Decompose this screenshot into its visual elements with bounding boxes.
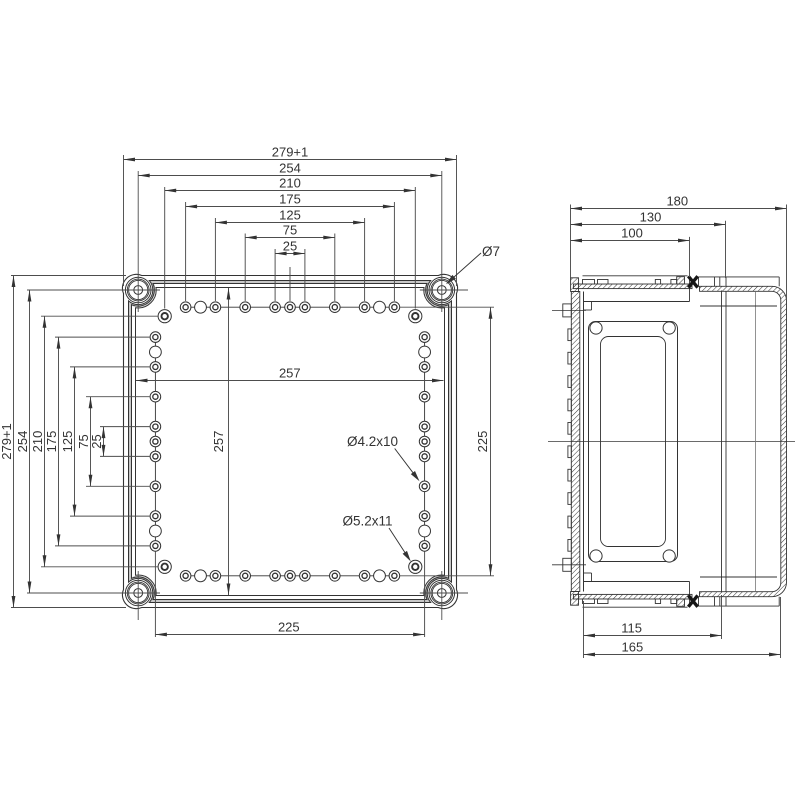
- svg-text:125: 125: [60, 431, 75, 453]
- svg-text:Ø7: Ø7: [482, 244, 500, 259]
- svg-text:254: 254: [279, 161, 301, 176]
- svg-text:100: 100: [621, 226, 643, 241]
- svg-text:25: 25: [89, 434, 104, 448]
- svg-text:279+1: 279+1: [0, 423, 14, 460]
- svg-text:125: 125: [279, 208, 301, 223]
- svg-text:Ø5.2x11: Ø5.2x11: [342, 514, 392, 529]
- svg-text:257: 257: [211, 431, 226, 453]
- svg-text:210: 210: [30, 431, 45, 453]
- svg-text:130: 130: [640, 210, 662, 225]
- svg-text:175: 175: [279, 192, 301, 207]
- svg-text:257: 257: [279, 366, 301, 381]
- svg-text:210: 210: [279, 176, 301, 191]
- svg-text:25: 25: [283, 239, 297, 254]
- svg-text:175: 175: [44, 431, 59, 453]
- svg-text:115: 115: [621, 621, 642, 636]
- svg-text:225: 225: [475, 431, 490, 453]
- svg-text:75: 75: [283, 223, 297, 238]
- svg-text:165: 165: [622, 640, 644, 655]
- svg-text:Ø4.2x10: Ø4.2x10: [347, 434, 398, 449]
- svg-text:279+1: 279+1: [272, 145, 309, 160]
- svg-text:254: 254: [15, 431, 30, 453]
- svg-text:225: 225: [278, 620, 300, 635]
- svg-text:180: 180: [666, 194, 688, 209]
